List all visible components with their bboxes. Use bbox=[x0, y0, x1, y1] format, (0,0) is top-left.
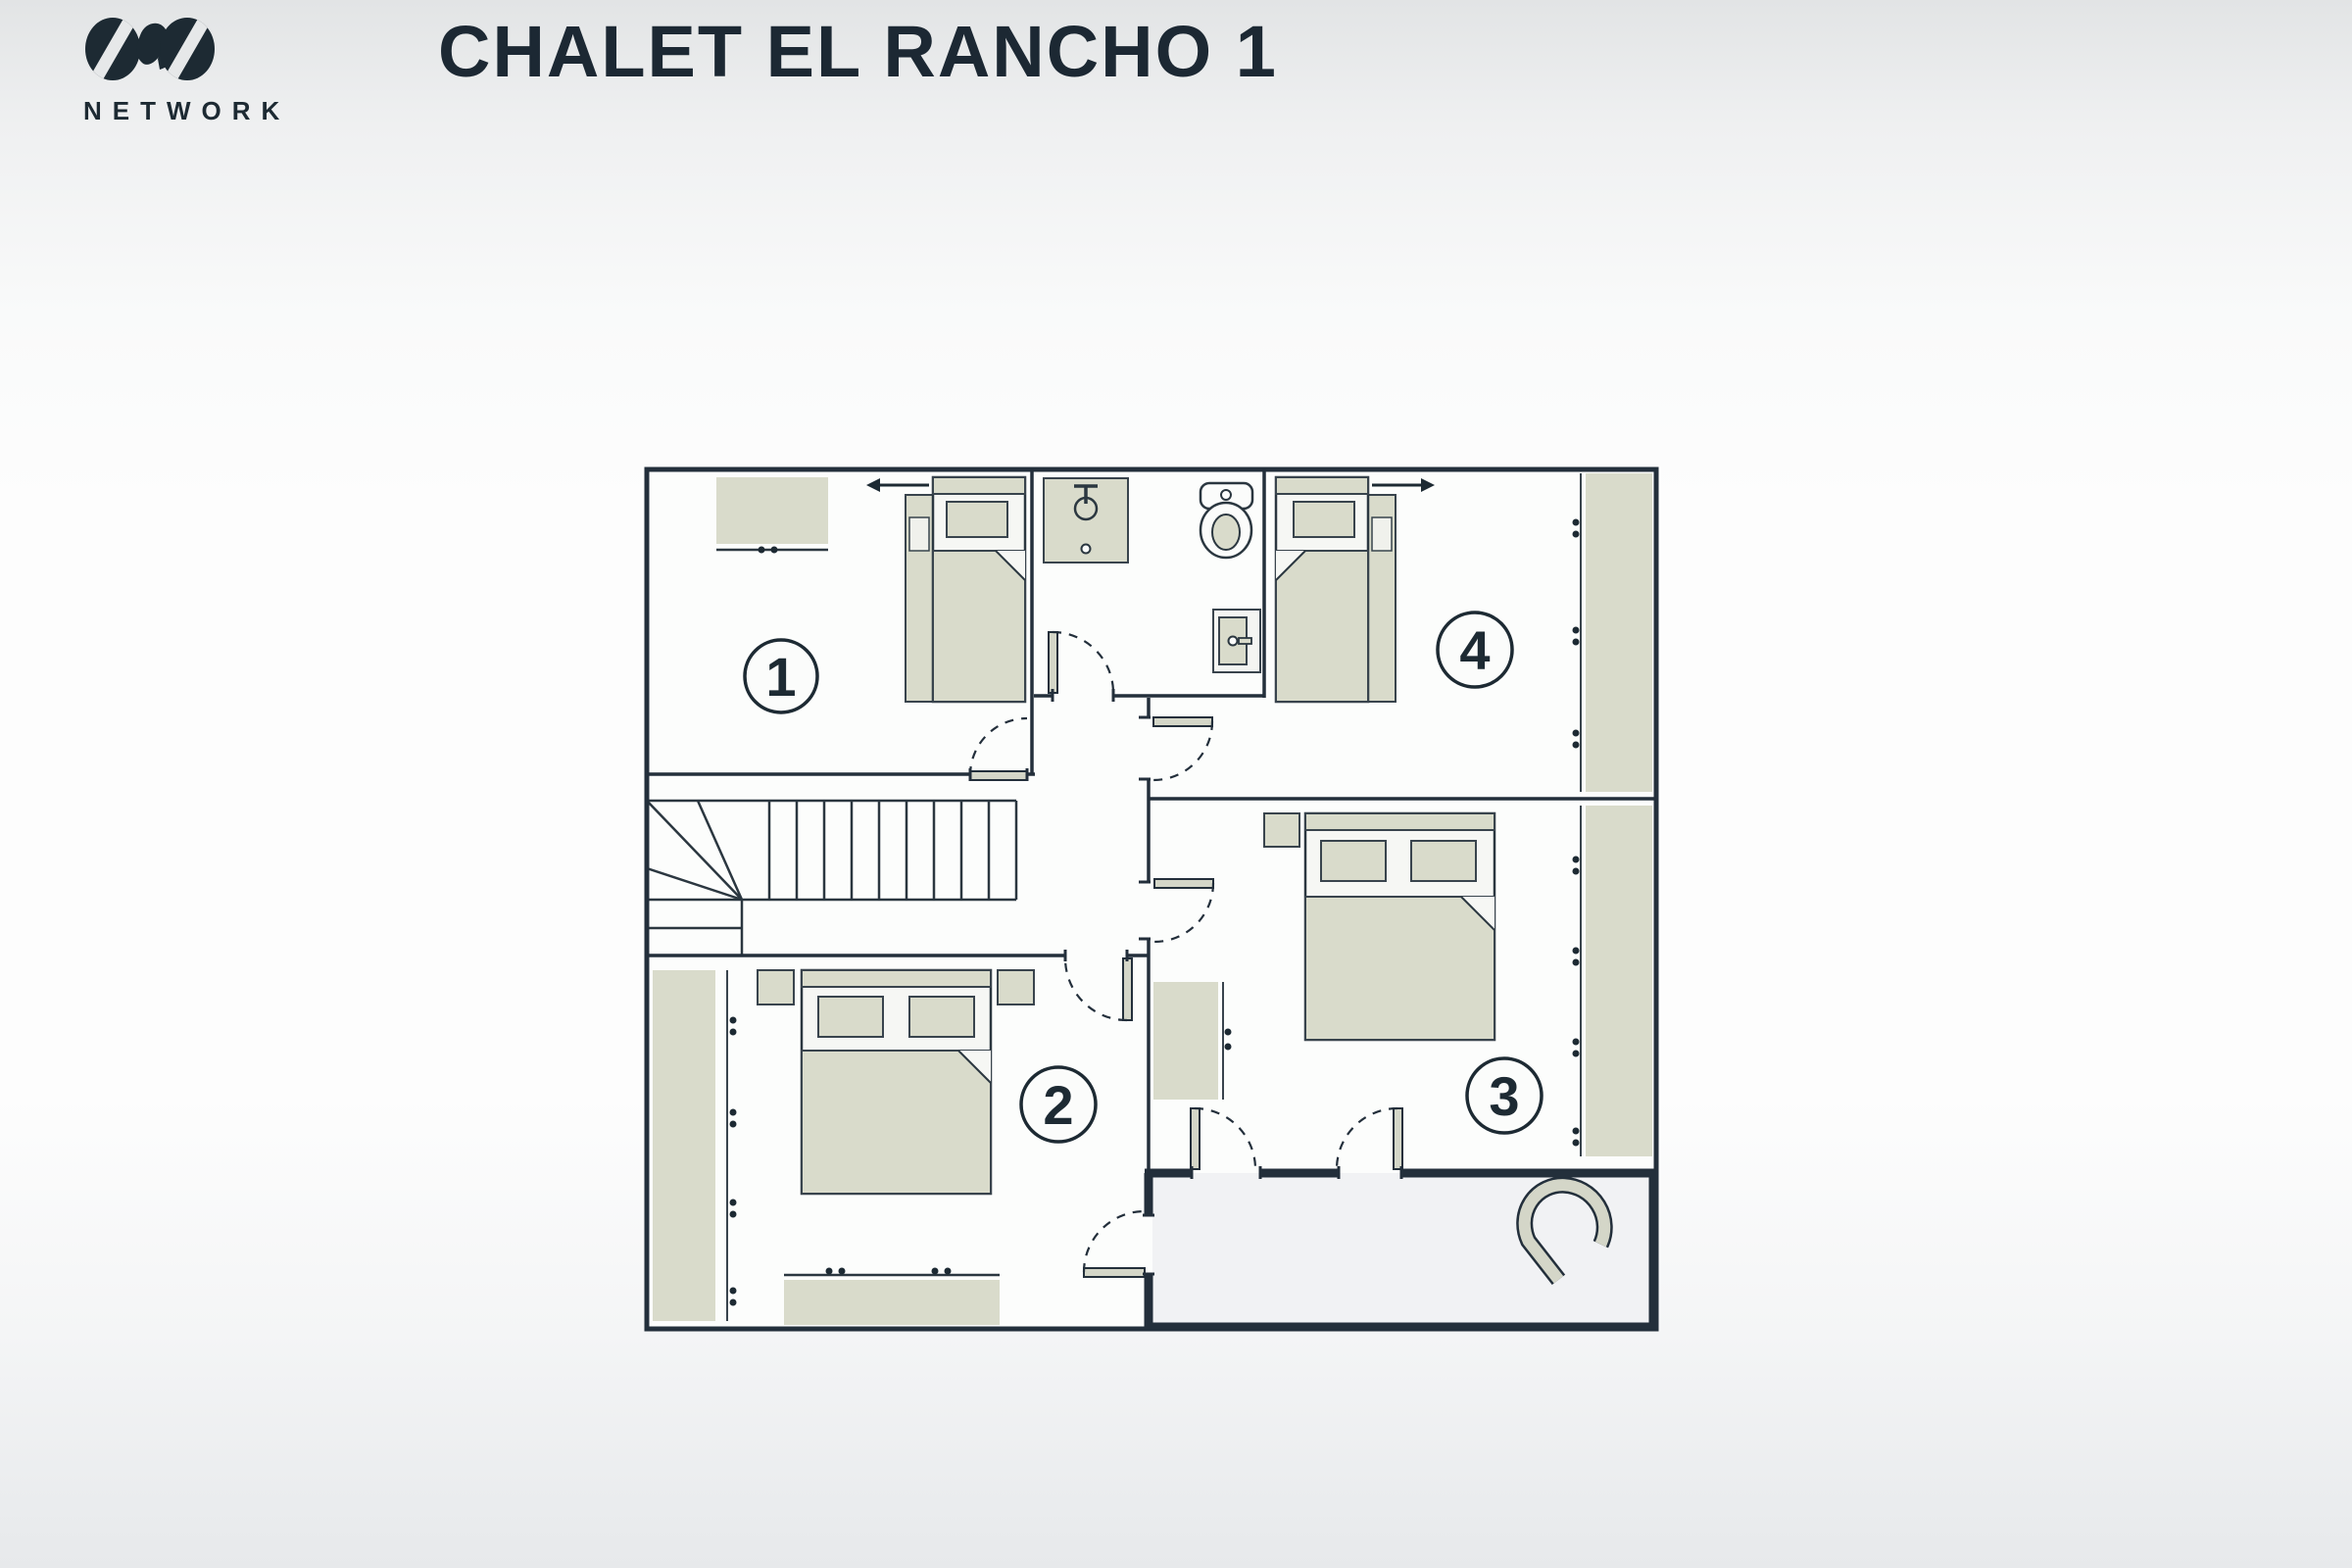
room-3-badge: 3 bbox=[1467, 1058, 1542, 1133]
floorplan-page: NETWORK CHALET EL RANCHO 1 bbox=[0, 0, 2352, 1568]
double-bed-room2 bbox=[802, 970, 991, 1194]
room-4-number: 4 bbox=[1459, 619, 1490, 681]
room-1-badge: 1 bbox=[745, 640, 817, 712]
room-2-badge: 2 bbox=[1021, 1067, 1096, 1142]
utility-cabinet bbox=[1213, 610, 1260, 672]
toilet bbox=[1200, 483, 1252, 558]
nightstand-room2-right bbox=[998, 970, 1034, 1004]
shower bbox=[1044, 478, 1128, 563]
dresser-room1 bbox=[716, 477, 828, 554]
room-3-number: 3 bbox=[1489, 1065, 1519, 1127]
nightstand-room3 bbox=[1264, 813, 1299, 847]
room-4-badge: 4 bbox=[1438, 612, 1512, 687]
floor-plan: 1 2 3 4 bbox=[0, 0, 2352, 1568]
nightstand-room2-left bbox=[758, 970, 794, 1004]
double-bed-room3 bbox=[1305, 813, 1494, 1040]
room-1-number: 1 bbox=[765, 646, 796, 708]
room-2-number: 2 bbox=[1043, 1074, 1073, 1136]
